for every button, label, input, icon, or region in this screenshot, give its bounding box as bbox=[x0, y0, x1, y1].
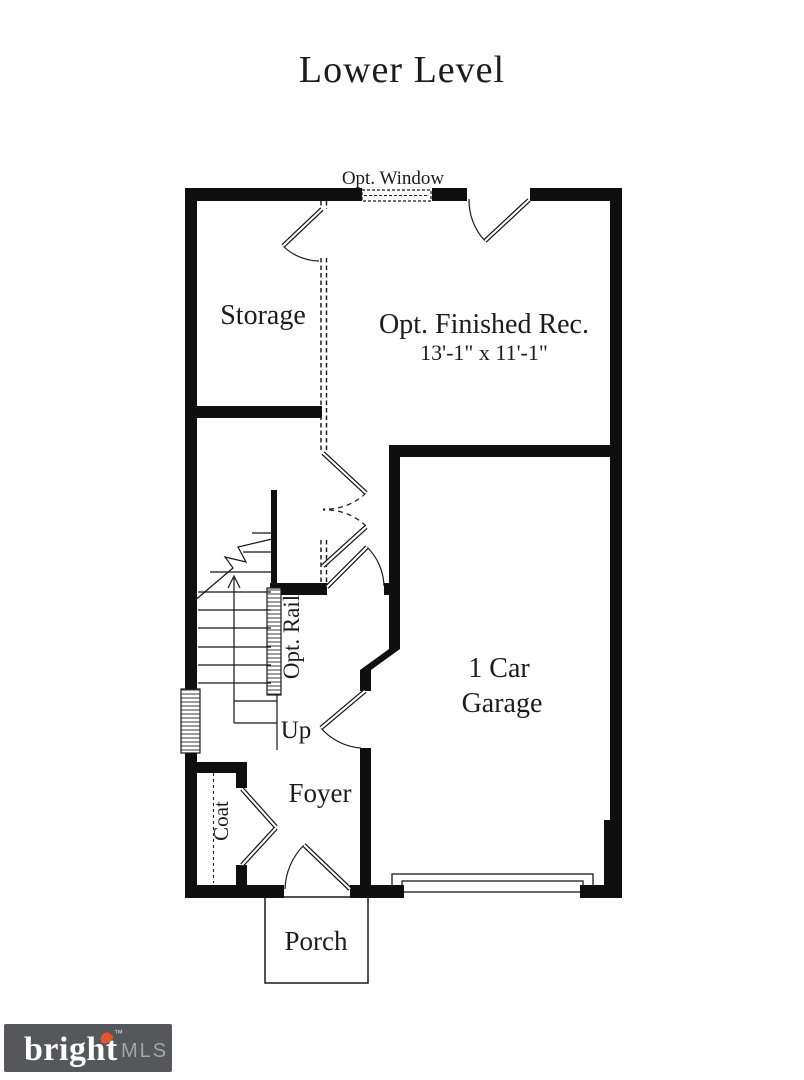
stairs bbox=[193, 533, 277, 750]
label-foyer: Foyer bbox=[289, 778, 352, 808]
door-front bbox=[285, 845, 350, 889]
label-opt-rail: Opt. Rail bbox=[279, 595, 304, 679]
coat-bifold-doors bbox=[242, 789, 276, 865]
door-storage bbox=[283, 209, 322, 261]
optional-window bbox=[362, 190, 431, 201]
logo-mls-text: MLS bbox=[121, 1040, 168, 1063]
label-storage: Storage bbox=[220, 300, 306, 331]
label-garage-line1: 1 Car bbox=[468, 653, 530, 684]
garage-door-threshold bbox=[392, 874, 593, 892]
label-garage-line2: Garage bbox=[462, 688, 543, 719]
optional-double-doors bbox=[323, 453, 366, 566]
page-title: Lower Level bbox=[299, 49, 505, 91]
optional-wall bbox=[321, 201, 327, 583]
floor-plan-drawing: Lower Level bbox=[0, 0, 804, 1080]
door-rec-room bbox=[469, 199, 529, 241]
label-rec-dims: 13'-1" x 11'-1" bbox=[420, 340, 548, 365]
floor-plan-page: Lower Level bbox=[0, 0, 804, 1080]
label-coat: Coat bbox=[209, 801, 233, 841]
label-porch: Porch bbox=[285, 926, 348, 956]
brightmls-logo: bright ™ MLS bbox=[4, 1024, 172, 1072]
left-window bbox=[181, 689, 200, 753]
label-opt-window: Opt. Window bbox=[342, 168, 445, 189]
trademark-symbol: ™ bbox=[114, 1028, 123, 1038]
door-garage-entry bbox=[321, 691, 365, 748]
label-up: Up bbox=[281, 717, 312, 744]
walls bbox=[185, 188, 622, 898]
label-rec-room: Opt. Finished Rec. bbox=[379, 309, 589, 340]
